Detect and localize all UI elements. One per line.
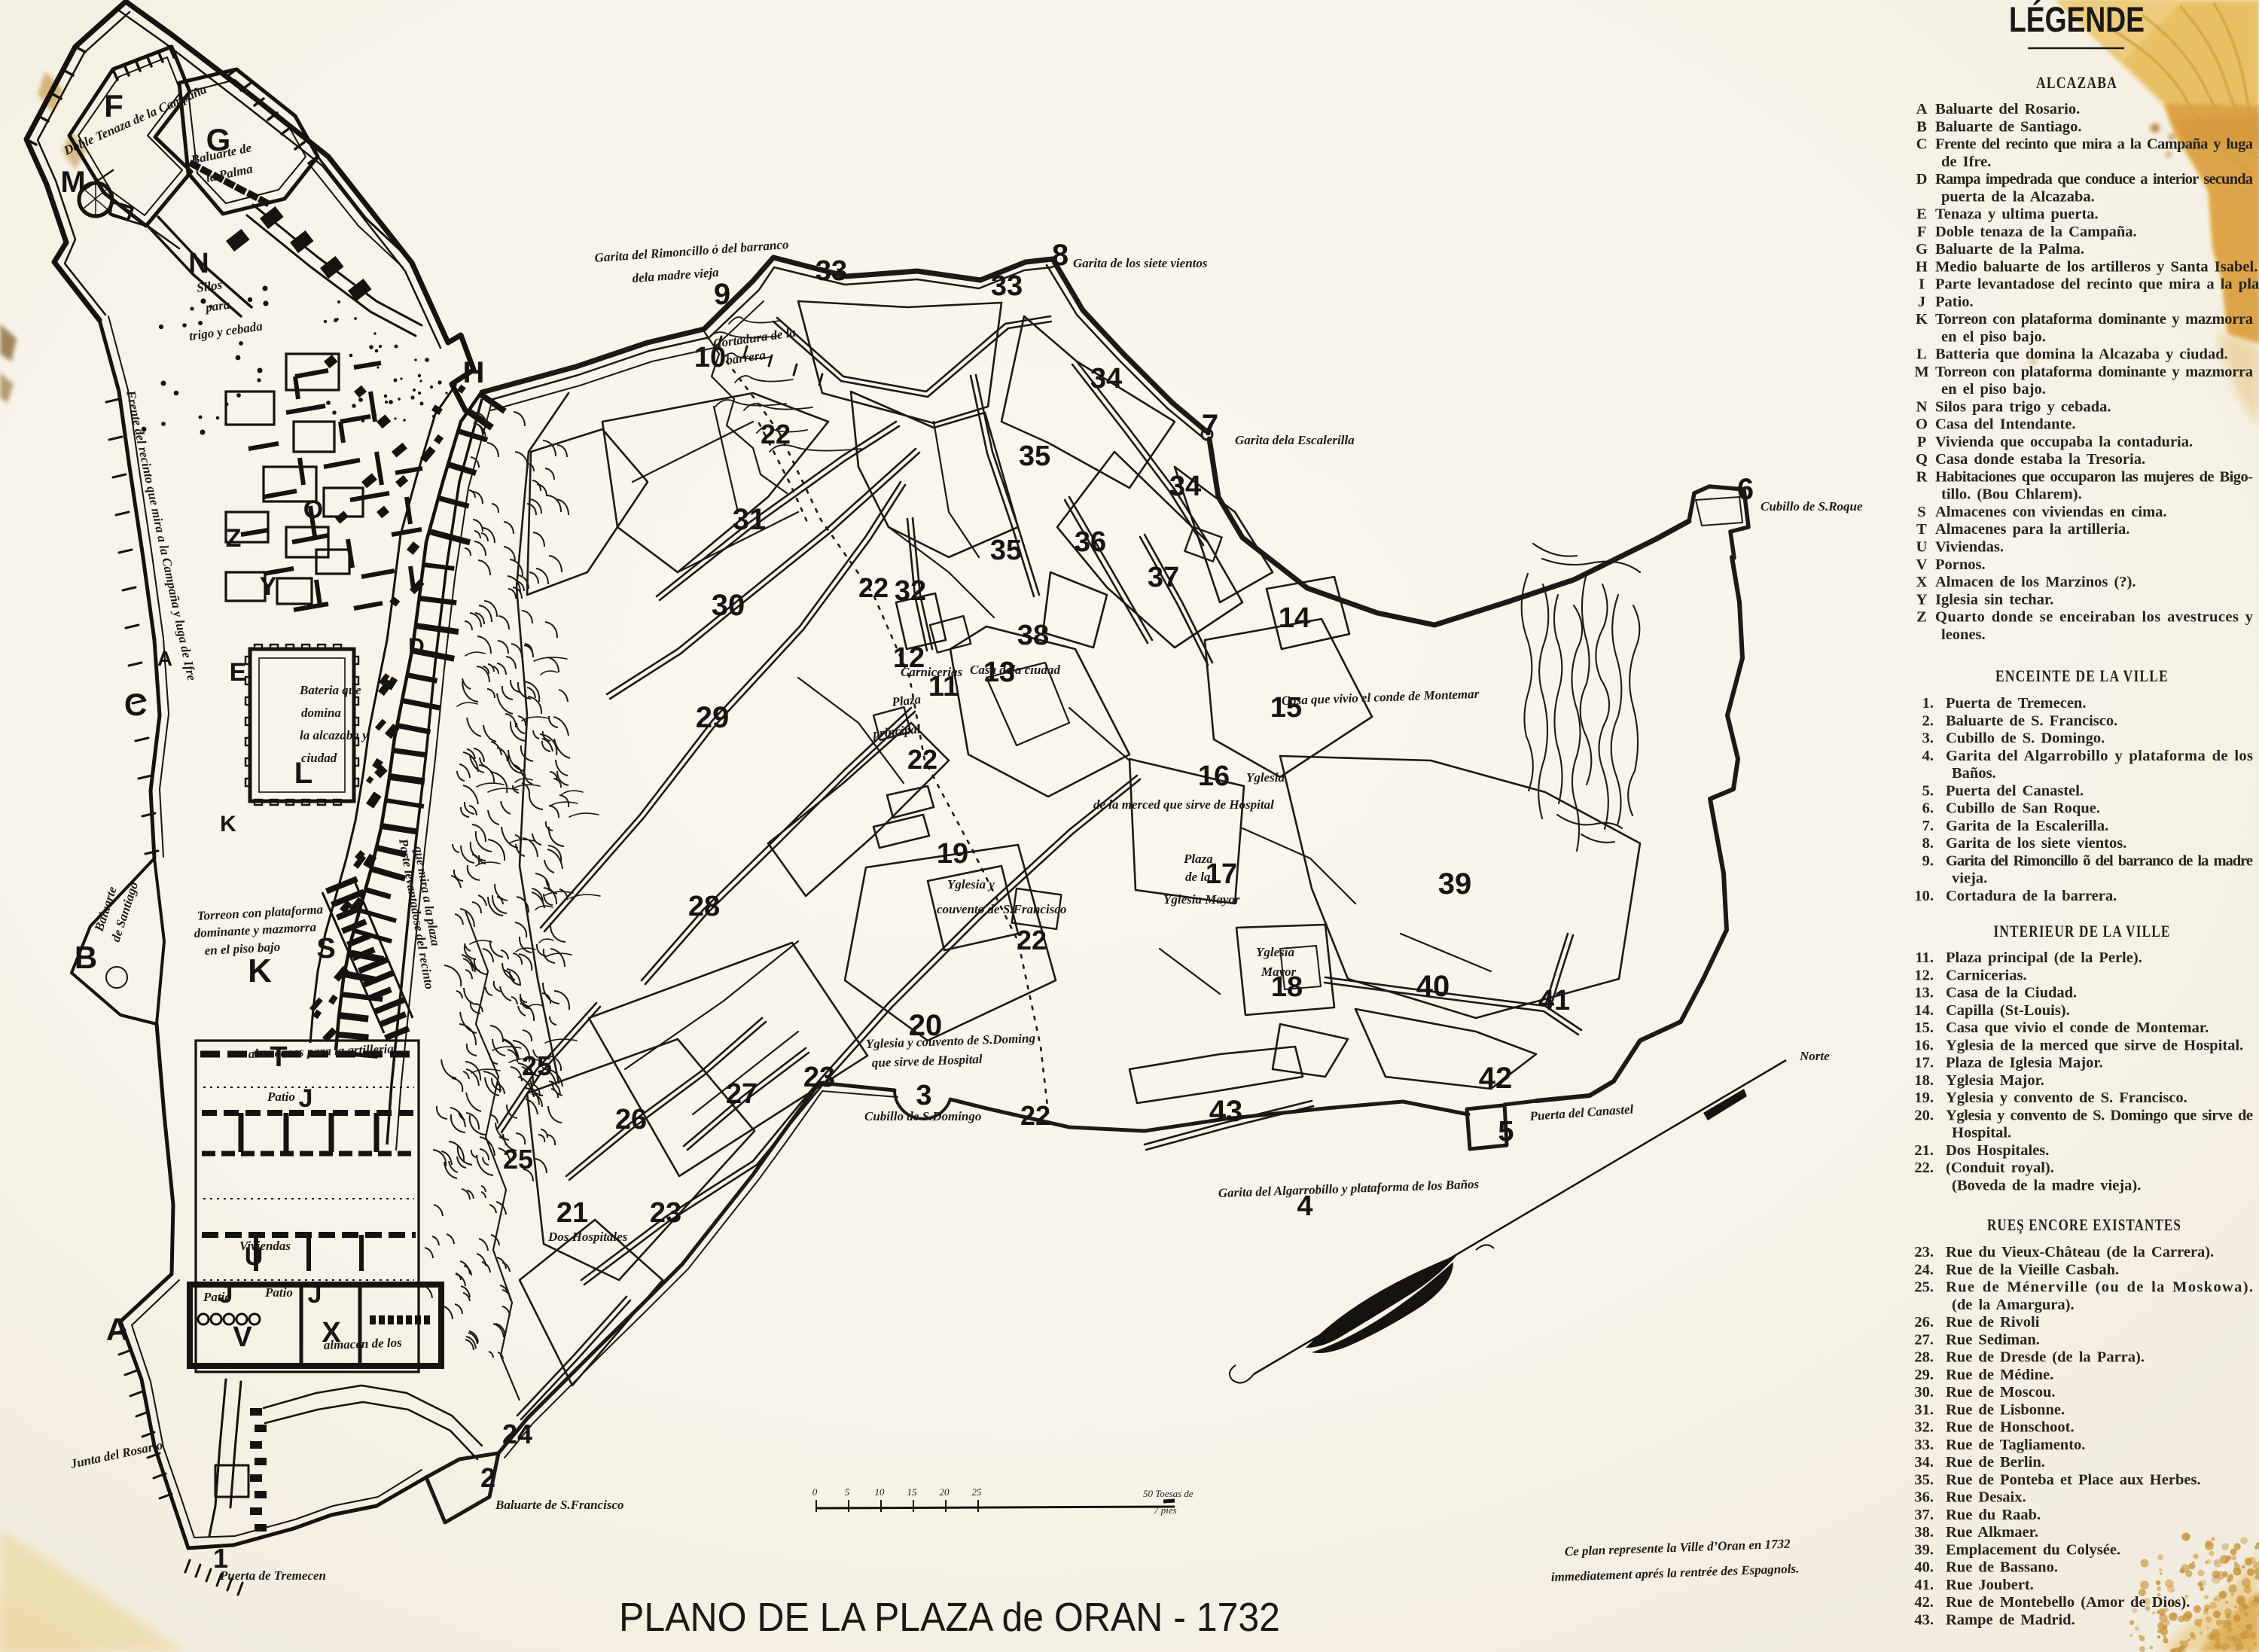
svg-text:1.: 1.: [1922, 695, 1934, 712]
svg-text:9.: 9.: [1922, 852, 1934, 869]
svg-text:Rue de la Vieille Casbah.: Rue de la Vieille Casbah.: [1946, 1261, 2119, 1278]
svg-text:39: 39: [1438, 867, 1472, 901]
svg-text:P: P: [1917, 434, 1927, 450]
svg-text:PLANO DE LA PLAZA de ORAN - 17: PLANO DE LA PLAZA de ORAN - 1732: [619, 1595, 1280, 1640]
svg-text:R: R: [1916, 469, 1928, 486]
svg-text:Viviendas: Viviendas: [239, 1239, 291, 1253]
svg-text:X: X: [1916, 574, 1928, 590]
svg-text:F: F: [1917, 224, 1927, 240]
svg-text:Dos Hospitales.: Dos Hospitales.: [1946, 1142, 2049, 1159]
svg-text:6: 6: [1737, 473, 1754, 506]
svg-text:35.: 35.: [1914, 1471, 1934, 1488]
svg-text:43: 43: [1209, 1095, 1243, 1128]
svg-text:J: J: [299, 1084, 313, 1113]
svg-text:24.: 24.: [1914, 1261, 1934, 1278]
svg-text:Rue Joubert.: Rue Joubert.: [1946, 1577, 2034, 1593]
svg-text:2.: 2.: [1922, 712, 1934, 729]
svg-text:Carnicerias.: Carnicerias.: [1946, 967, 2027, 983]
svg-text:34: 34: [1169, 471, 1201, 502]
svg-text:31.: 31.: [1914, 1401, 1934, 1418]
svg-text:Emplacement du Colysée.: Emplacement du Colysée.: [1946, 1541, 2120, 1558]
svg-text:Baluarte de S. Francisco.: Baluarte de S. Francisco.: [1946, 712, 2117, 729]
svg-text:38.: 38.: [1914, 1524, 1934, 1541]
svg-text:de la merced que sirve de Hosp: de la merced que sirve de Hospital: [1093, 797, 1274, 812]
svg-text:B: B: [75, 940, 97, 975]
svg-text:Quarto donde se enceiraban los: Quarto donde se enceiraban los avestruce…: [1935, 609, 2254, 626]
svg-text:L: L: [1916, 346, 1927, 363]
svg-text:10.: 10.: [1914, 888, 1934, 904]
svg-text:39.: 39.: [1914, 1541, 1934, 1558]
svg-text:Almacenes para la artilleria.: Almacenes para la artilleria.: [1935, 521, 2129, 538]
svg-text:tillo. (Bou Chlarem).: tillo. (Bou Chlarem).: [1941, 486, 2082, 503]
svg-text:15: 15: [907, 1486, 918, 1498]
svg-text:Cubillo de S.Domingo: Cubillo de S.Domingo: [864, 1109, 981, 1123]
svg-text:Rue de Lisbonne.: Rue de Lisbonne.: [1946, 1401, 2065, 1418]
svg-text:5: 5: [1498, 1116, 1514, 1148]
svg-text:en el piso bajo.: en el piso bajo.: [1941, 328, 2046, 345]
svg-text:Yglesia: Yglesia: [1246, 770, 1285, 785]
svg-text:Vivienda que occupaba la conta: Vivienda que occupaba la contaduria.: [1935, 434, 2193, 450]
svg-text:27.: 27.: [1914, 1331, 1934, 1348]
svg-text:B: B: [1916, 118, 1927, 135]
svg-text:Yglesia y convento de S. Domin: Yglesia y convento de S. Domingo que sir…: [1946, 1107, 2253, 1123]
svg-text:ciudad: ciudad: [301, 751, 337, 765]
svg-text:Garita de la Escalerilla.: Garita de la Escalerilla.: [1946, 818, 2108, 834]
svg-text:0: 0: [812, 1486, 818, 1498]
svg-text:Norte: Norte: [1799, 1049, 1830, 1063]
svg-text:26.: 26.: [1914, 1314, 1934, 1330]
svg-text:Plaza principal (de la Perle).: Plaza principal (de la Perle).: [1946, 949, 2142, 966]
svg-text:Casa dela ciudad: Casa dela ciudad: [970, 663, 1060, 677]
svg-text:33.: 33.: [1914, 1437, 1934, 1453]
svg-text:en el piso bajo.: en el piso bajo.: [1941, 381, 2046, 398]
svg-text:D: D: [408, 634, 425, 659]
svg-text:35: 35: [1019, 440, 1050, 472]
svg-text:Rue de Ménerville (ou de la Mo: Rue de Ménerville (ou de la Moskowa).: [1946, 1279, 2253, 1296]
svg-text:J: J: [308, 1280, 322, 1309]
svg-text:Patio.: Patio.: [1935, 294, 1974, 310]
svg-text:7: 7: [1202, 409, 1218, 442]
svg-text:16.: 16.: [1914, 1037, 1934, 1053]
svg-text:Plaza de Iglesia Major.: Plaza de Iglesia Major.: [1946, 1055, 2103, 1071]
svg-text:Rue du Raab.: Rue du Raab.: [1946, 1507, 2041, 1523]
svg-text:29: 29: [696, 701, 730, 734]
svg-text:31: 31: [733, 503, 767, 536]
svg-text:13.: 13.: [1914, 985, 1934, 1001]
svg-text:Rampa impedrada que conduce a: Rampa impedrada que conduce a interior s…: [1935, 171, 2253, 187]
svg-text:5.: 5.: [1922, 782, 1934, 799]
svg-text:V: V: [1916, 556, 1928, 573]
svg-text:H: H: [463, 356, 485, 389]
svg-text:T: T: [1916, 521, 1927, 538]
svg-text:Rue Sediman.: Rue Sediman.: [1946, 1331, 2040, 1348]
svg-text:Y: Y: [260, 572, 277, 601]
svg-text:Capilla (St-Louis).: Capilla (St-Louis).: [1946, 1002, 2070, 1019]
svg-text:Rue Desaix.: Rue Desaix.: [1946, 1489, 2026, 1506]
svg-text:puerta de la Alcazaba.: puerta de la Alcazaba.: [1941, 188, 2095, 205]
svg-text:Rue du Vieux-Château (de la Ca: Rue du Vieux-Château (de la Carrera).: [1946, 1244, 2214, 1260]
svg-text:Rue Alkmaer.: Rue Alkmaer.: [1946, 1524, 2038, 1541]
svg-text:16: 16: [1198, 760, 1230, 792]
svg-text:S: S: [1917, 504, 1925, 520]
svg-text:14.: 14.: [1914, 1002, 1934, 1019]
svg-text:(Boveda de la madre vieja).: (Boveda de la madre vieja).: [1952, 1177, 2141, 1193]
svg-text:28.: 28.: [1914, 1349, 1934, 1366]
svg-text:Baluarte de la Palma.: Baluarte de la Palma.: [1935, 241, 2084, 258]
svg-text:27: 27: [726, 1078, 758, 1110]
svg-text:50 Toesas de: 50 Toesas de: [1143, 1488, 1194, 1499]
svg-text:Habitaciones que occuparon las: Habitaciones que occuparon las mujeres d…: [1935, 469, 2253, 486]
svg-text:30.: 30.: [1914, 1384, 1934, 1401]
svg-text:Rampe de Madrid.: Rampe de Madrid.: [1946, 1612, 2075, 1629]
svg-text:Garita de los siete vientos.: Garita de los siete vientos.: [1946, 835, 2126, 852]
svg-text:Puerta de Tremecen.: Puerta de Tremecen.: [1946, 695, 2086, 712]
svg-text:19: 19: [937, 838, 968, 870]
svg-text:N: N: [188, 248, 209, 279]
svg-text:H: H: [1916, 258, 1928, 275]
svg-text:Baluarte de S.Francisco: Baluarte de S.Francisco: [495, 1498, 624, 1512]
svg-text:11.: 11.: [1916, 949, 1934, 966]
svg-text:34: 34: [1090, 363, 1122, 395]
svg-text:Z: Z: [1916, 609, 1927, 626]
svg-text:Y: Y: [1916, 591, 1928, 608]
svg-text:Medio baluarte de los artiller: Medio baluarte de los artilleros y Santa…: [1935, 258, 2257, 275]
svg-text:U: U: [1916, 539, 1928, 556]
svg-text:22.: 22.: [1914, 1160, 1934, 1176]
svg-text:33: 33: [991, 270, 1023, 302]
svg-text:Batteria que domina la Alcazab: Batteria que domina la Alcazaba y ciudad…: [1935, 346, 2228, 363]
svg-text:8: 8: [1052, 239, 1069, 272]
svg-text:K: K: [248, 952, 272, 989]
svg-text:37: 37: [1148, 562, 1179, 593]
svg-text:Q: Q: [1916, 451, 1928, 468]
svg-text:23: 23: [803, 1062, 835, 1093]
svg-text:21: 21: [556, 1197, 588, 1229]
svg-text:22: 22: [761, 419, 791, 450]
svg-text:(de la Amargura).: (de la Amargura).: [1952, 1297, 2075, 1313]
svg-text:Yglesia de la merced que sirve: Yglesia de la merced que sirve de Hospit…: [1946, 1037, 2243, 1053]
svg-text:Patio: Patio: [264, 1285, 293, 1300]
svg-text:40: 40: [1416, 970, 1450, 1003]
svg-text:Frente del recinto que mira a: Frente del recinto que mira a la Campaña…: [1935, 136, 2253, 153]
svg-text:36.: 36.: [1914, 1489, 1934, 1506]
svg-text:Rue de Ponteba et Place aux He: Rue de Ponteba et Place aux Herbes.: [1946, 1471, 2201, 1488]
svg-text:Yglesia Mayor: Yglesia Mayor: [1163, 892, 1240, 907]
svg-text:Dos Hospitales: Dos Hospitales: [547, 1230, 628, 1244]
svg-text:7.: 7.: [1922, 818, 1934, 834]
svg-text:Torreon con plataforma dominan: Torreon con plataforma dominante y mazmo…: [1935, 311, 2253, 328]
svg-text:Rue de Moscou.: Rue de Moscou.: [1946, 1384, 2056, 1401]
svg-text:3: 3: [916, 1080, 931, 1111]
svg-text:30: 30: [712, 589, 745, 622]
svg-text:(Conduit royal).: (Conduit royal).: [1946, 1160, 2054, 1176]
svg-text:de la: de la: [1185, 870, 1211, 884]
svg-text:4.: 4.: [1922, 748, 1934, 764]
svg-text:28: 28: [688, 891, 720, 922]
svg-text:20: 20: [940, 1486, 950, 1498]
svg-text:Casa del Intendante.: Casa del Intendante.: [1935, 416, 2076, 433]
svg-text:Garita del Rimoncillo õ del ba: Garita del Rimoncillo õ del barranco de …: [1946, 852, 2253, 869]
svg-text:34.: 34.: [1914, 1454, 1934, 1471]
svg-text:38: 38: [1017, 620, 1049, 651]
svg-text:Rue de Bassano.: Rue de Bassano.: [1946, 1559, 2058, 1576]
svg-text:de Ifre.: de Ifre.: [1941, 154, 1991, 170]
svg-text:6.: 6.: [1922, 800, 1934, 817]
svg-text:E: E: [230, 658, 247, 687]
svg-text:ALCAZABA: ALCAZABA: [2036, 73, 2117, 92]
svg-text:Yglesia y: Yglesia y: [947, 877, 995, 892]
svg-text:14: 14: [1279, 602, 1310, 634]
svg-text:almacen de los: almacen de los: [323, 1335, 402, 1352]
svg-text:C: C: [124, 687, 147, 722]
svg-text:43.: 43.: [1914, 1612, 1934, 1629]
svg-text:5: 5: [845, 1486, 850, 1498]
svg-text:O: O: [303, 495, 323, 524]
svg-text:2: 2: [480, 1462, 495, 1493]
svg-text:LÉGENDE: LÉGENDE: [2009, 0, 2145, 39]
svg-text:19.: 19.: [1914, 1090, 1934, 1106]
svg-text:Rue de Dresde (de la Parra).: Rue de Dresde (de la Parra).: [1946, 1349, 2145, 1366]
svg-text:Cubillo de S.Roque: Cubillo de S.Roque: [1761, 499, 1863, 514]
svg-text:Rue de Honschoot.: Rue de Honschoot.: [1946, 1419, 2075, 1436]
svg-text:D: D: [1916, 171, 1928, 187]
svg-text:24: 24: [502, 1419, 532, 1449]
svg-text:Silos para trigo y cebada.: Silos para trigo y cebada.: [1935, 398, 2111, 415]
svg-text:Z: Z: [226, 524, 242, 553]
svg-text:Baluarte de Santiago.: Baluarte de Santiago.: [1935, 118, 2082, 135]
svg-text:V: V: [233, 1321, 252, 1353]
svg-text:40.: 40.: [1914, 1559, 1934, 1576]
svg-text:Cortadura de la barrera.: Cortadura de la barrera.: [1946, 888, 2117, 904]
svg-text:la alcazaba y: la alcazaba y: [300, 728, 368, 742]
svg-text:25: 25: [522, 1050, 552, 1081]
svg-text:41.: 41.: [1914, 1577, 1934, 1593]
svg-text:Puerta de Tremecen: Puerta de Tremecen: [219, 1568, 326, 1583]
svg-text:Bateria que: Bateria que: [299, 683, 361, 697]
svg-text:Almacen de los Marzinos (?).: Almacen de los Marzinos (?).: [1935, 574, 2136, 590]
svg-text:Cubillo de San Roque.: Cubillo de San Roque.: [1946, 800, 2100, 817]
svg-text:12.: 12.: [1914, 967, 1934, 983]
svg-text:Baluarte del Rosario.: Baluarte del Rosario.: [1935, 101, 2080, 117]
svg-text:E: E: [1916, 206, 1927, 223]
svg-text:42.: 42.: [1914, 1594, 1934, 1611]
svg-text:Yglesia y convento de S. Franc: Yglesia y convento de S. Francisco.: [1946, 1090, 2187, 1106]
svg-text:Rue de Montebello (Amor de Dio: Rue de Montebello (Amor de Dios).: [1946, 1594, 2190, 1611]
svg-text:A: A: [106, 1312, 129, 1347]
svg-text:Almacenes con viviendas en cim: Almacenes con viviendas en cima.: [1935, 504, 2167, 520]
svg-text:Viviendas.: Viviendas.: [1935, 539, 2004, 556]
svg-text:ENCEINTE DE LA VILLE: ENCEINTE DE LA VILLE: [1995, 666, 2169, 685]
svg-text:leones.: leones.: [1941, 626, 1986, 643]
svg-text:8.: 8.: [1922, 835, 1934, 852]
svg-text:17.: 17.: [1914, 1055, 1934, 1071]
svg-text:Plaza: Plaza: [1183, 852, 1213, 866]
svg-text:K: K: [1916, 311, 1928, 328]
svg-text:S: S: [316, 933, 335, 965]
svg-text:Patio: Patio: [203, 1290, 231, 1304]
svg-text:Mayor: Mayor: [1261, 965, 1297, 979]
svg-text:Carnicerias: Carnicerias: [901, 665, 963, 679]
svg-text:Parte levantadose del recinto: Parte levantadose del recinto que mira a…: [1935, 276, 2259, 293]
svg-text:J: J: [1918, 294, 1925, 310]
svg-text:3.: 3.: [1922, 730, 1934, 747]
svg-text:Yglesia: Yglesia: [1256, 945, 1294, 959]
svg-text:25.: 25.: [1914, 1279, 1934, 1296]
svg-text:RUEŞ ENCORE EXISTANTES: RUEŞ ENCORE EXISTANTES: [1987, 1215, 2181, 1234]
svg-text:22: 22: [858, 572, 889, 603]
svg-text:32.: 32.: [1914, 1419, 1934, 1436]
svg-text:29.: 29.: [1914, 1367, 1934, 1383]
svg-text:37.: 37.: [1914, 1507, 1934, 1523]
svg-text:41: 41: [1538, 985, 1570, 1016]
svg-text:Garita del Algarrobillo y plat: Garita del Algarrobillo y plataforma de …: [1946, 748, 2253, 764]
svg-text:33: 33: [815, 255, 847, 287]
svg-text:25: 25: [972, 1486, 983, 1498]
svg-text:Rue de Médine.: Rue de Médine.: [1946, 1367, 2053, 1383]
svg-text:vieja.: vieja.: [1952, 870, 1987, 887]
svg-text:Garita dela Escalerilla: Garita dela Escalerilla: [1235, 433, 1355, 447]
svg-text:I: I: [1919, 276, 1925, 293]
svg-text:N: N: [1916, 398, 1928, 415]
svg-text:G: G: [1916, 241, 1928, 258]
svg-text:20.: 20.: [1914, 1107, 1934, 1123]
svg-text:Puerta del Canastel.: Puerta del Canastel.: [1946, 782, 2084, 799]
svg-text:Yglesia Major.: Yglesia Major.: [1946, 1072, 2044, 1089]
svg-text:Casa donde estaba la Tresoria.: Casa donde estaba la Tresoria.: [1935, 451, 2145, 468]
svg-text:7 pies: 7 pies: [1154, 1504, 1177, 1516]
svg-text:32: 32: [895, 575, 926, 607]
svg-text:M: M: [1914, 364, 1928, 380]
svg-text:22: 22: [1017, 925, 1047, 956]
svg-text:Hospital.: Hospital.: [1952, 1125, 2011, 1141]
svg-text:Doble tenaza de la Campaña.: Doble tenaza de la Campaña.: [1935, 224, 2137, 240]
svg-text:Rue de Tagliamento.: Rue de Tagliamento.: [1946, 1437, 2085, 1453]
svg-text:domina: domina: [301, 706, 341, 720]
svg-text:21.: 21.: [1914, 1142, 1934, 1159]
svg-text:22: 22: [1020, 1100, 1050, 1131]
svg-text:36: 36: [1075, 526, 1106, 558]
svg-text:C: C: [1916, 136, 1928, 153]
svg-text:Iglesia sin techar.: Iglesia sin techar.: [1935, 591, 2053, 608]
svg-text:25: 25: [503, 1144, 533, 1175]
svg-text:couvento de S.Francisco: couvento de S.Francisco: [937, 902, 1066, 916]
svg-text:Tenaza y ultima puerta.: Tenaza y ultima puerta.: [1935, 206, 2099, 223]
svg-text:A: A: [157, 647, 172, 670]
svg-text:26: 26: [615, 1104, 647, 1135]
svg-text:23: 23: [650, 1197, 681, 1229]
svg-text:35: 35: [990, 535, 1022, 566]
svg-text:22: 22: [907, 744, 937, 775]
svg-text:Cubillo de S. Domingo.: Cubillo de S. Domingo.: [1946, 730, 2105, 747]
svg-text:Torreon con plataforma dominan: Torreon con plataforma dominante y mazmo…: [1935, 364, 2253, 380]
svg-text:O: O: [1916, 416, 1928, 433]
svg-text:42: 42: [1479, 1062, 1513, 1095]
svg-text:Rue de Berlin.: Rue de Berlin.: [1946, 1454, 2045, 1471]
svg-text:9: 9: [714, 278, 730, 311]
svg-text:A: A: [1916, 101, 1928, 117]
svg-text:15.: 15.: [1914, 1020, 1934, 1036]
svg-text:INTERIEUR DE LA VILLE: INTERIEUR DE LA VILLE: [1994, 922, 2171, 940]
svg-text:Patio: Patio: [267, 1090, 295, 1104]
svg-text:Pornos.: Pornos.: [1935, 556, 1986, 573]
svg-text:M: M: [60, 166, 85, 199]
svg-text:K: K: [220, 812, 236, 837]
svg-text:Rue de Rivoli: Rue de Rivoli: [1946, 1314, 2040, 1330]
svg-text:10: 10: [875, 1486, 886, 1498]
svg-text:Casa de la Ciudad.: Casa de la Ciudad.: [1946, 985, 2077, 1001]
svg-text:18.: 18.: [1914, 1072, 1934, 1089]
svg-text:Garita de los siete vientos: Garita de los siete vientos: [1073, 256, 1208, 270]
svg-text:Casa que vivio el conde de Mon: Casa que vivio el conde de Montemar.: [1946, 1020, 2209, 1036]
svg-text:Baños.: Baños.: [1952, 765, 1996, 782]
svg-text:23.: 23.: [1914, 1244, 1934, 1260]
